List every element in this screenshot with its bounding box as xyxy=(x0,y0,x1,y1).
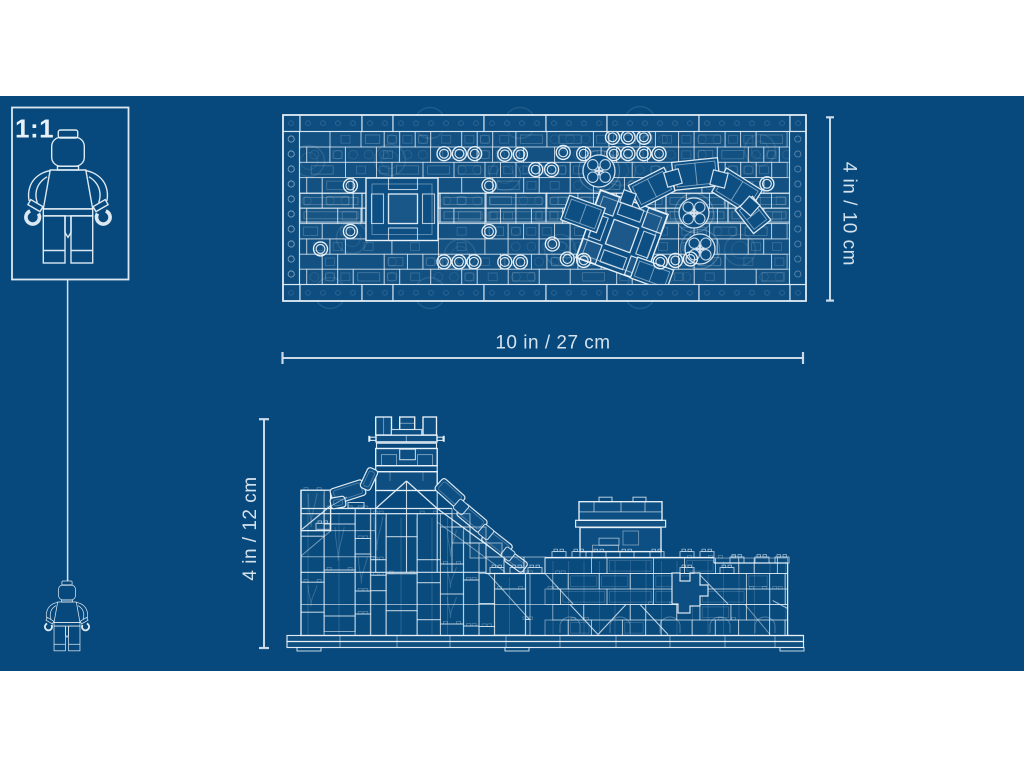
svg-text:4 in / 12 cm: 4 in / 12 cm xyxy=(240,476,261,580)
svg-text:1:1: 1:1 xyxy=(15,114,54,144)
svg-text:10 in / 27 cm: 10 in / 27 cm xyxy=(495,333,610,354)
svg-text:4 in / 10 cm: 4 in / 10 cm xyxy=(838,162,859,266)
